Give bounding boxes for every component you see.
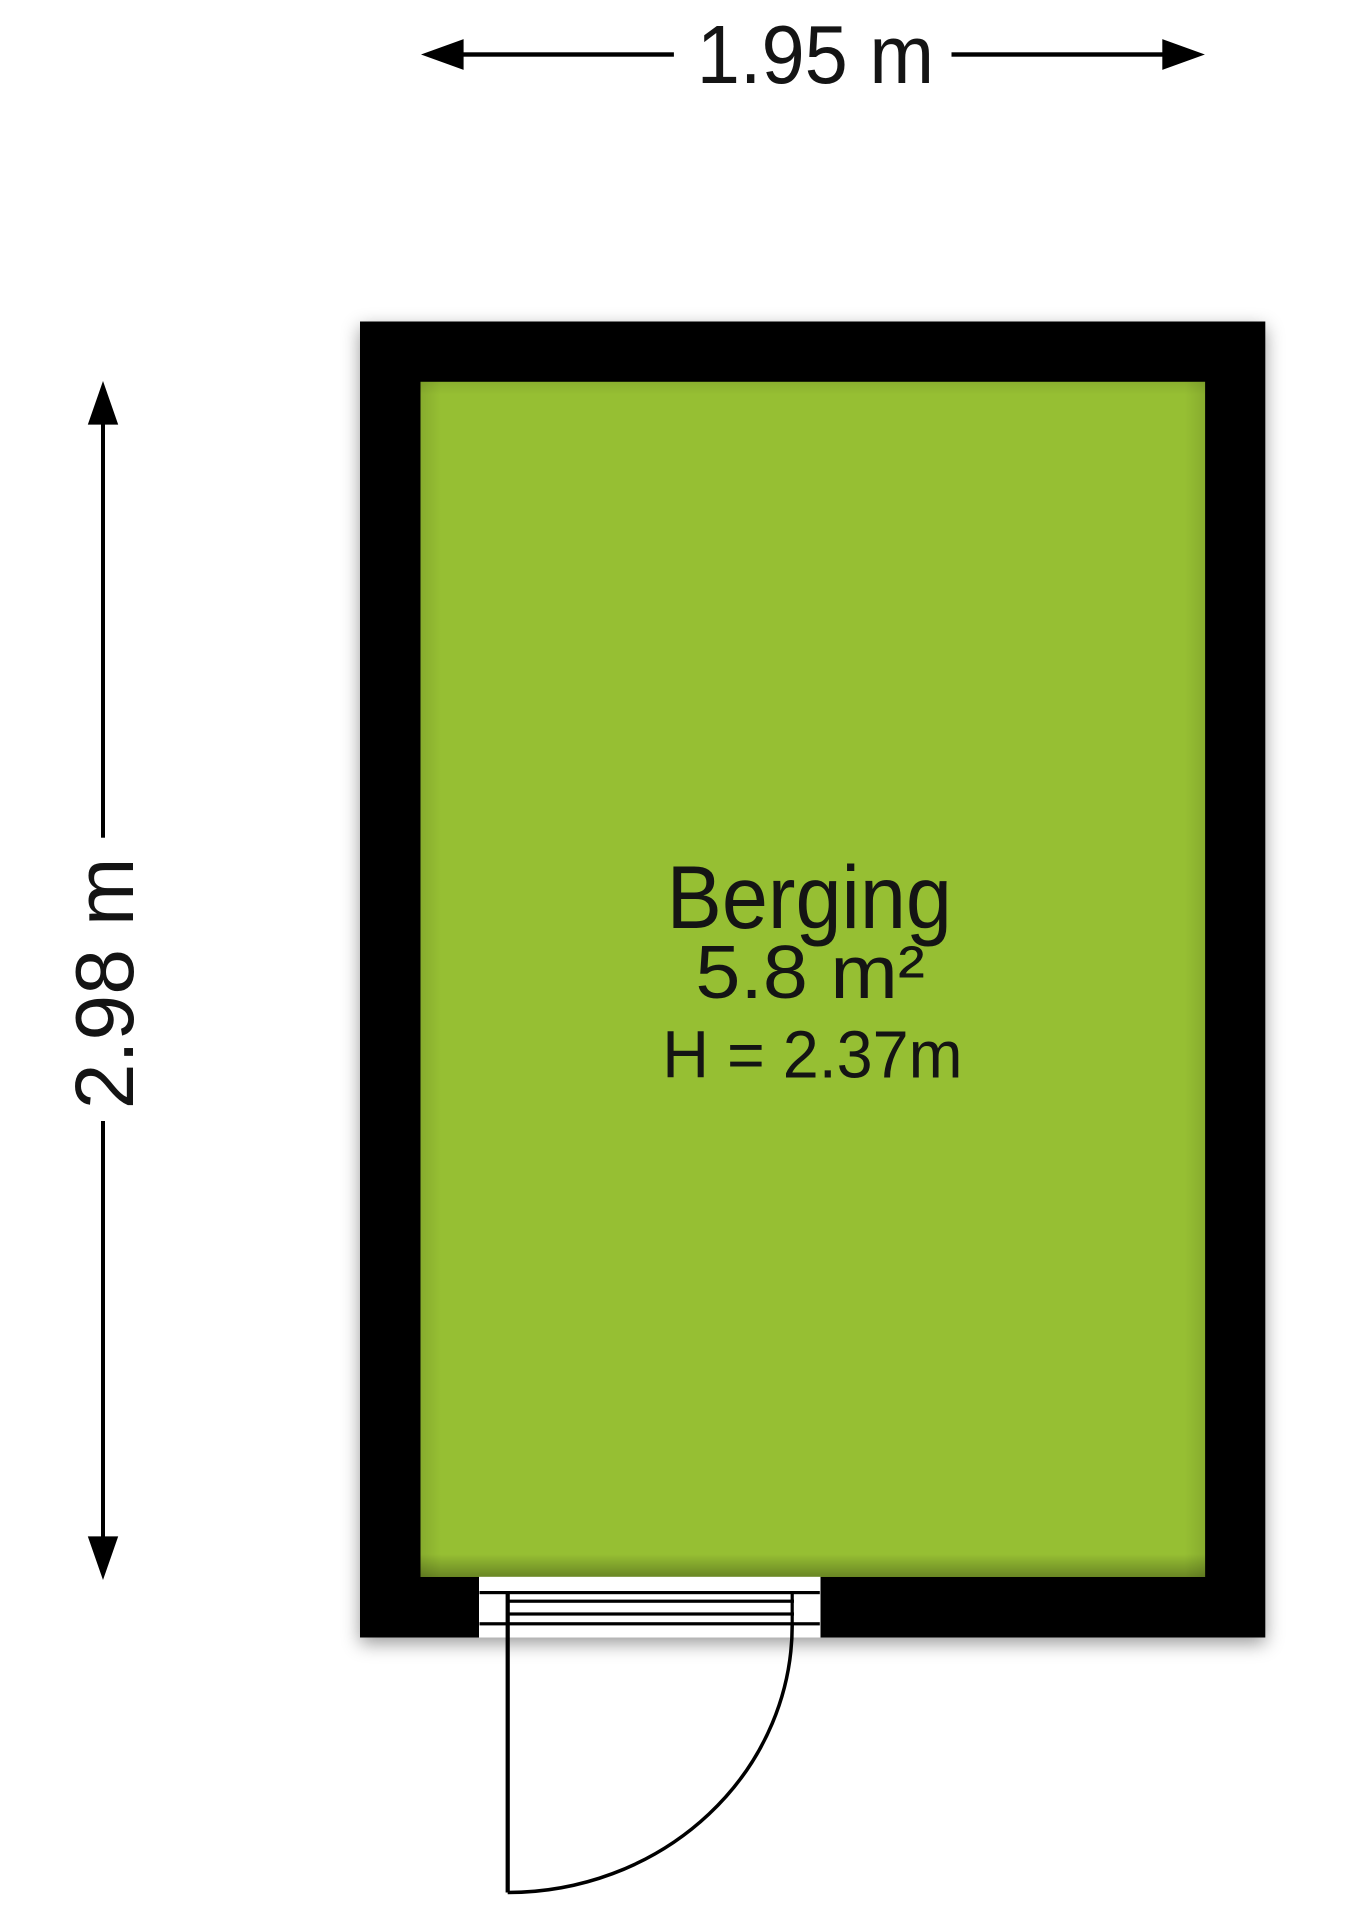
- svg-text:5.8 m²: 5.8 m²: [695, 930, 925, 1014]
- svg-text:1.95 m: 1.95 m: [697, 8, 934, 101]
- svg-text:H = 2.37m: H = 2.37m: [662, 1017, 962, 1092]
- svg-text:2.98 m: 2.98 m: [58, 858, 151, 1110]
